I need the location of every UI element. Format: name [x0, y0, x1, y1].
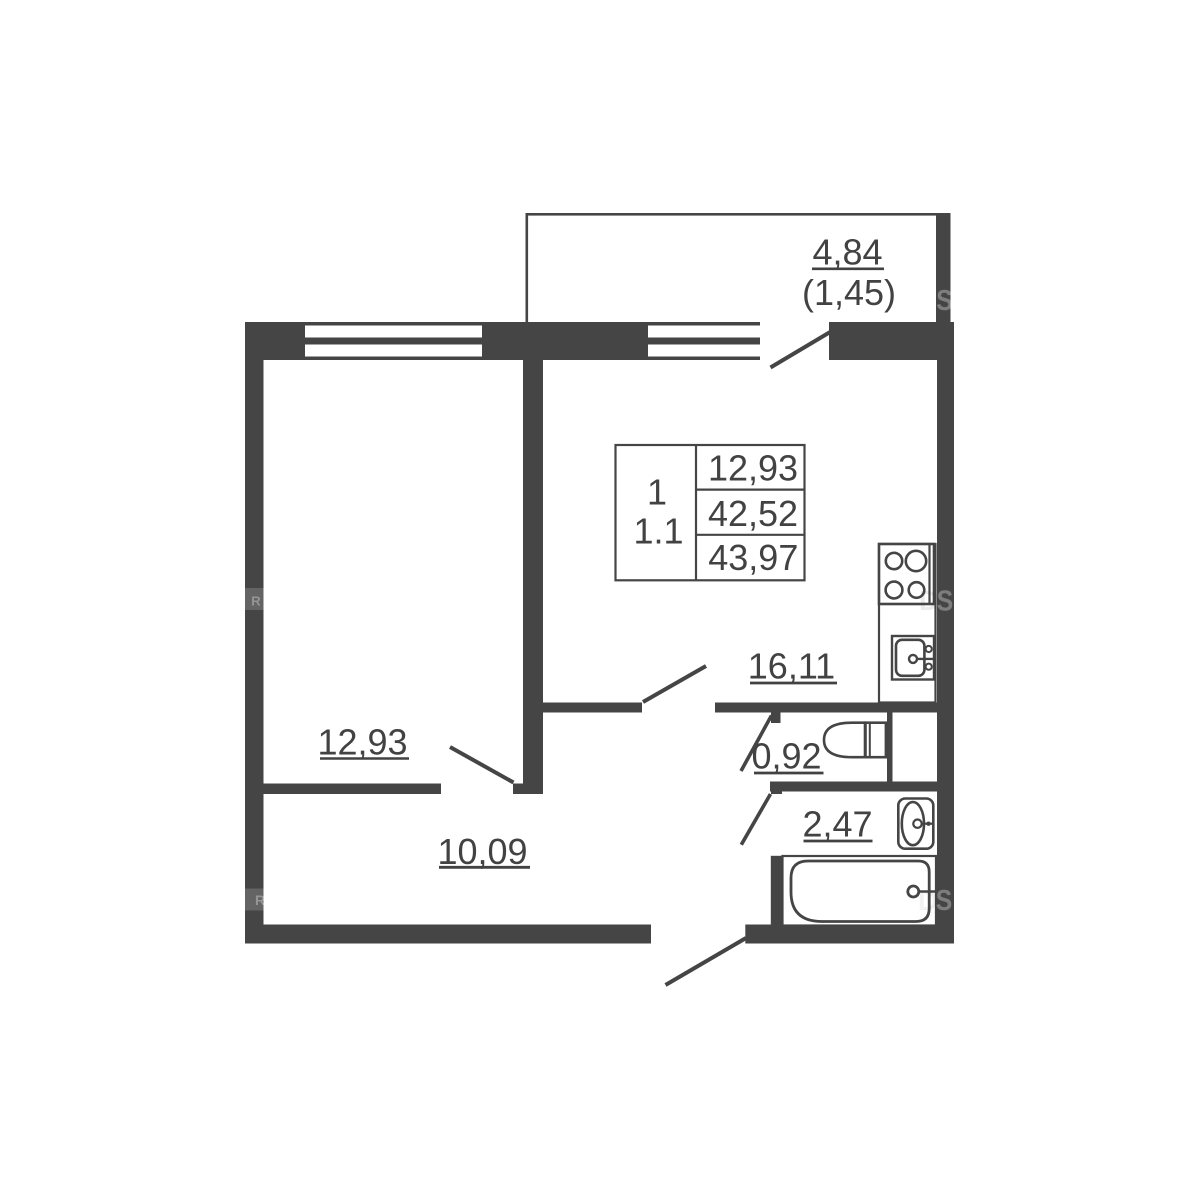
svg-text:4,84: 4,84: [812, 232, 882, 273]
svg-text:(1,45): (1,45): [802, 272, 896, 313]
svg-text:16,11: 16,11: [748, 645, 835, 686]
svg-text:1: 1: [647, 472, 667, 513]
svg-text:S: S: [936, 884, 952, 916]
svg-text:43,97: 43,97: [708, 537, 798, 578]
svg-text:42,52: 42,52: [708, 493, 798, 534]
svg-text:10,09: 10,09: [437, 831, 527, 872]
svg-text:R: R: [251, 594, 261, 609]
svg-text:12,93: 12,93: [708, 448, 798, 489]
svg-text:12,93: 12,93: [317, 722, 407, 763]
svg-text:S: S: [936, 284, 952, 316]
svg-text:S: S: [937, 585, 953, 617]
svg-text:0,92: 0,92: [751, 736, 821, 777]
svg-text:1.1: 1.1: [633, 511, 683, 552]
svg-text:R: R: [255, 892, 265, 908]
svg-text:2,47: 2,47: [802, 804, 872, 845]
